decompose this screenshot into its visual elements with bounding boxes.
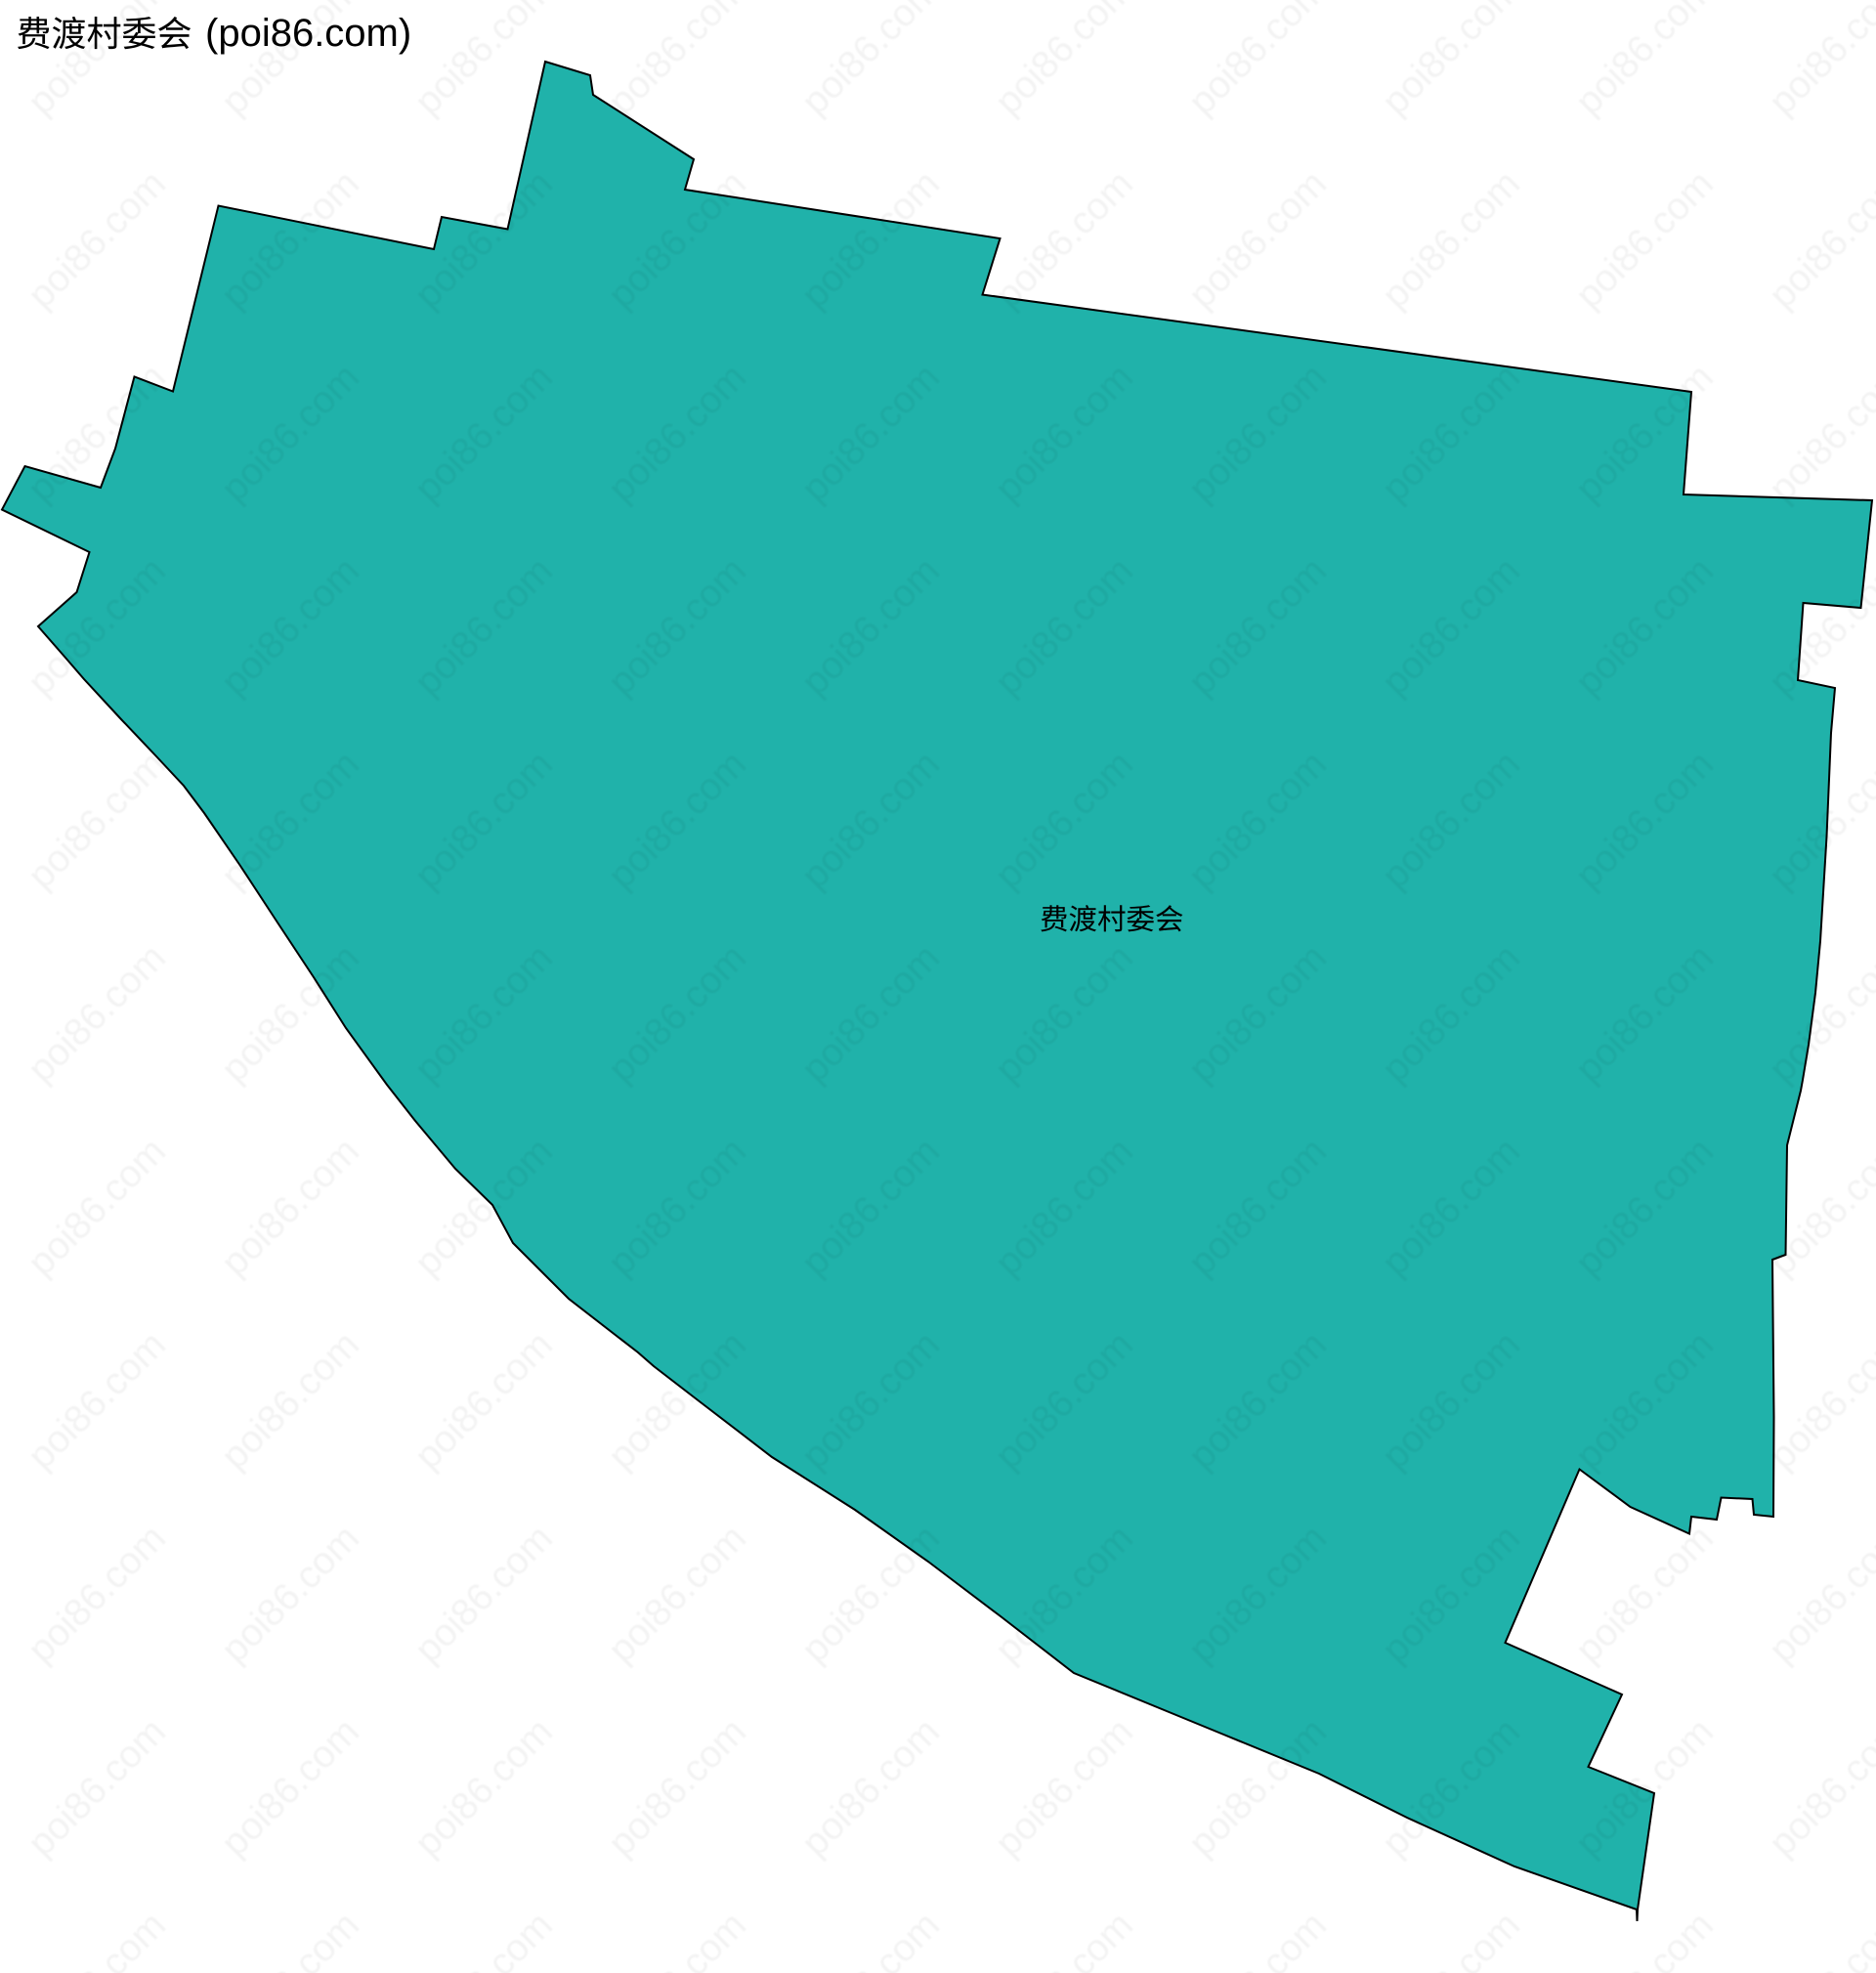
svg-text:(poi86.com): (poi86.com) [205, 12, 411, 55]
